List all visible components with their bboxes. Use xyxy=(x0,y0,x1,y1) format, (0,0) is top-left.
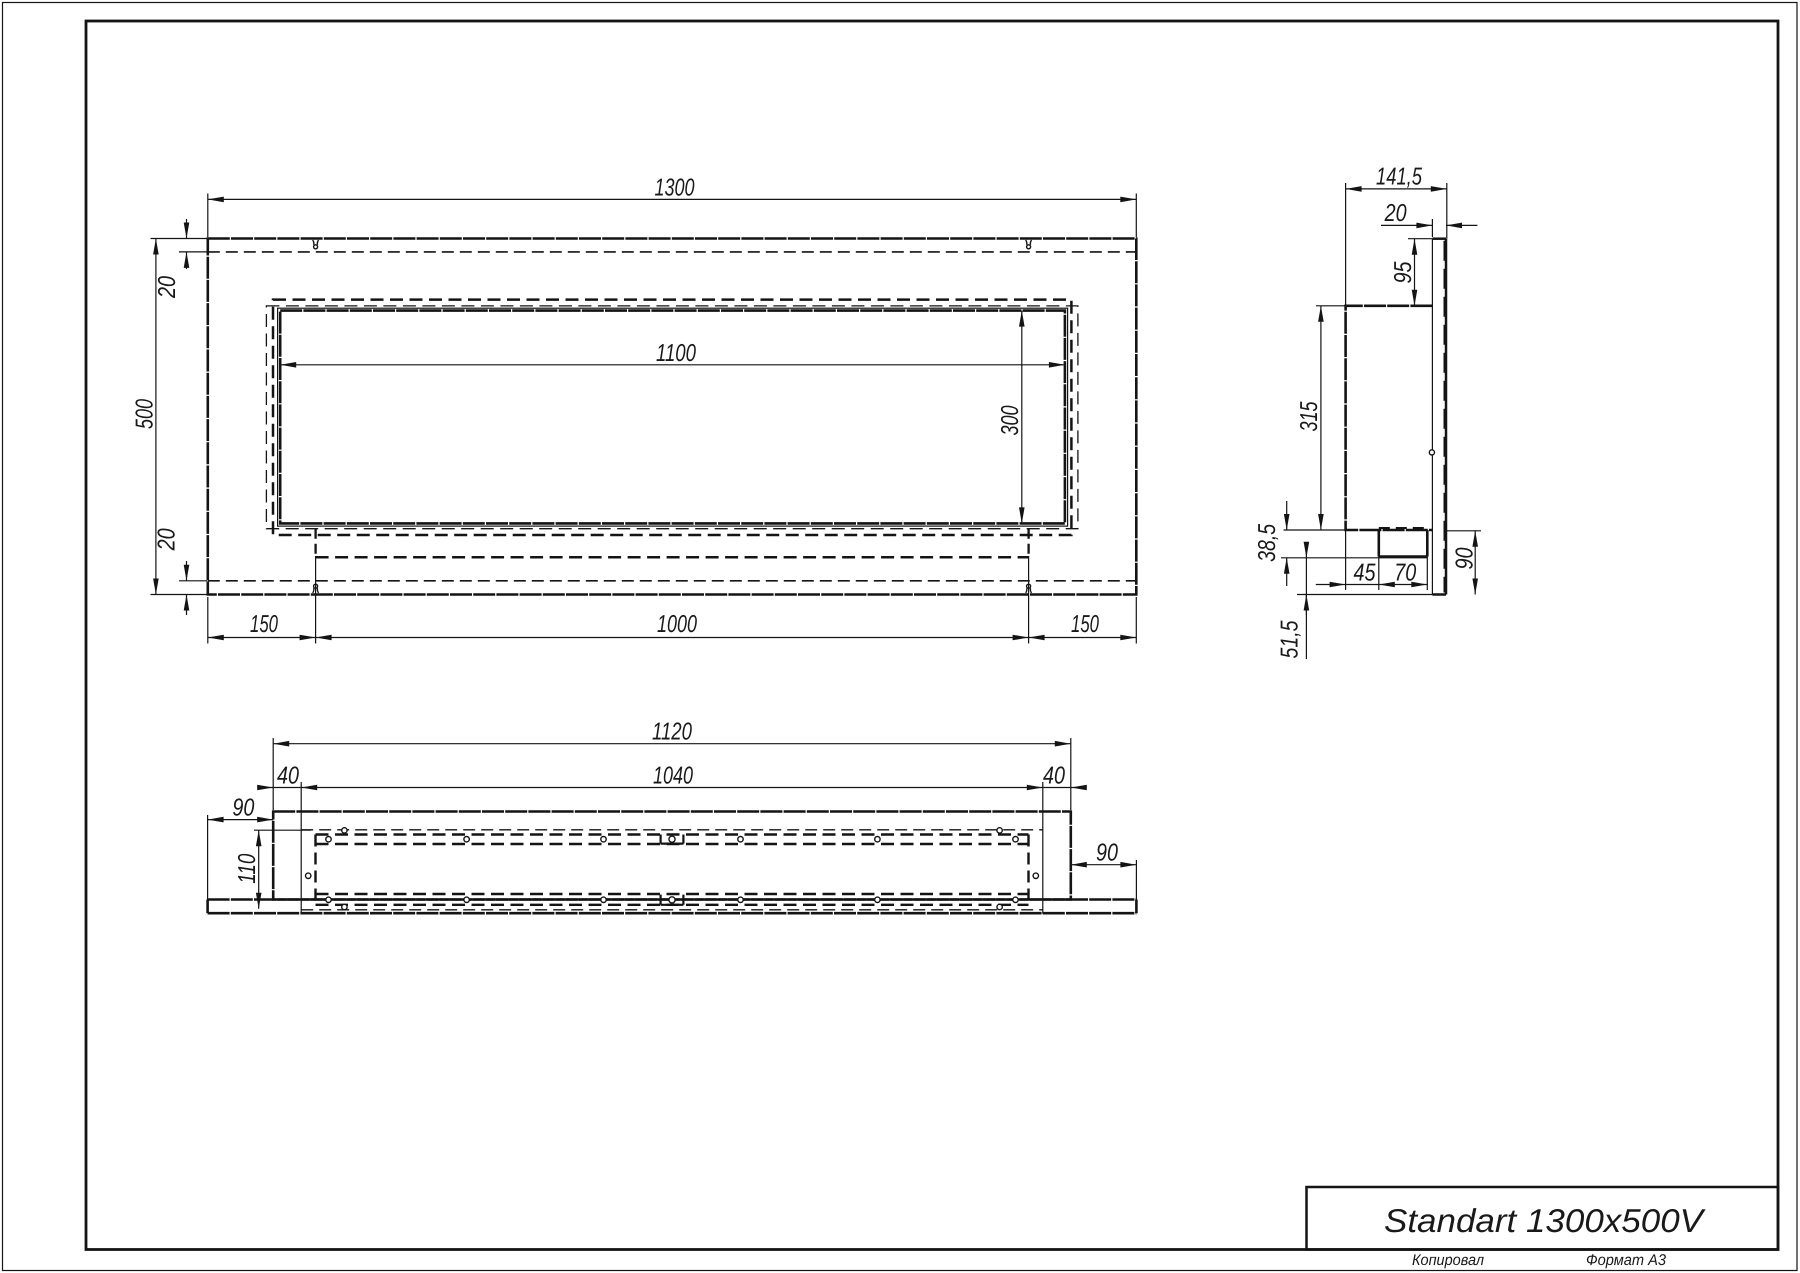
svg-text:90: 90 xyxy=(1096,840,1118,867)
svg-text:20: 20 xyxy=(1384,200,1407,227)
svg-text:70: 70 xyxy=(1394,560,1416,587)
svg-text:Формат А3: Формат А3 xyxy=(1586,1252,1666,1269)
svg-text:1120: 1120 xyxy=(652,719,692,746)
svg-text:150: 150 xyxy=(250,611,278,638)
svg-text:20: 20 xyxy=(154,528,181,551)
svg-text:110: 110 xyxy=(234,853,261,883)
svg-text:90: 90 xyxy=(232,795,254,822)
svg-text:95: 95 xyxy=(1390,261,1417,283)
svg-text:20: 20 xyxy=(154,276,181,299)
svg-text:51,5: 51,5 xyxy=(1277,620,1304,658)
svg-text:141,5: 141,5 xyxy=(1376,163,1422,190)
svg-text:1000: 1000 xyxy=(657,611,697,638)
svg-text:1040: 1040 xyxy=(653,763,693,790)
svg-text:150: 150 xyxy=(1071,611,1099,638)
svg-text:1100: 1100 xyxy=(656,340,696,367)
svg-text:40: 40 xyxy=(277,763,299,790)
svg-text:Копировал: Копировал xyxy=(1412,1252,1484,1269)
svg-text:300: 300 xyxy=(997,405,1024,435)
svg-text:45: 45 xyxy=(1354,560,1376,587)
svg-text:500: 500 xyxy=(131,399,158,429)
svg-text:Standart 1300x500V: Standart 1300x500V xyxy=(1384,1202,1706,1239)
svg-text:1300: 1300 xyxy=(655,174,695,201)
svg-text:90: 90 xyxy=(1452,547,1479,569)
svg-text:40: 40 xyxy=(1043,763,1065,790)
svg-text:315: 315 xyxy=(1296,401,1323,431)
svg-text:38,5: 38,5 xyxy=(1254,524,1281,562)
